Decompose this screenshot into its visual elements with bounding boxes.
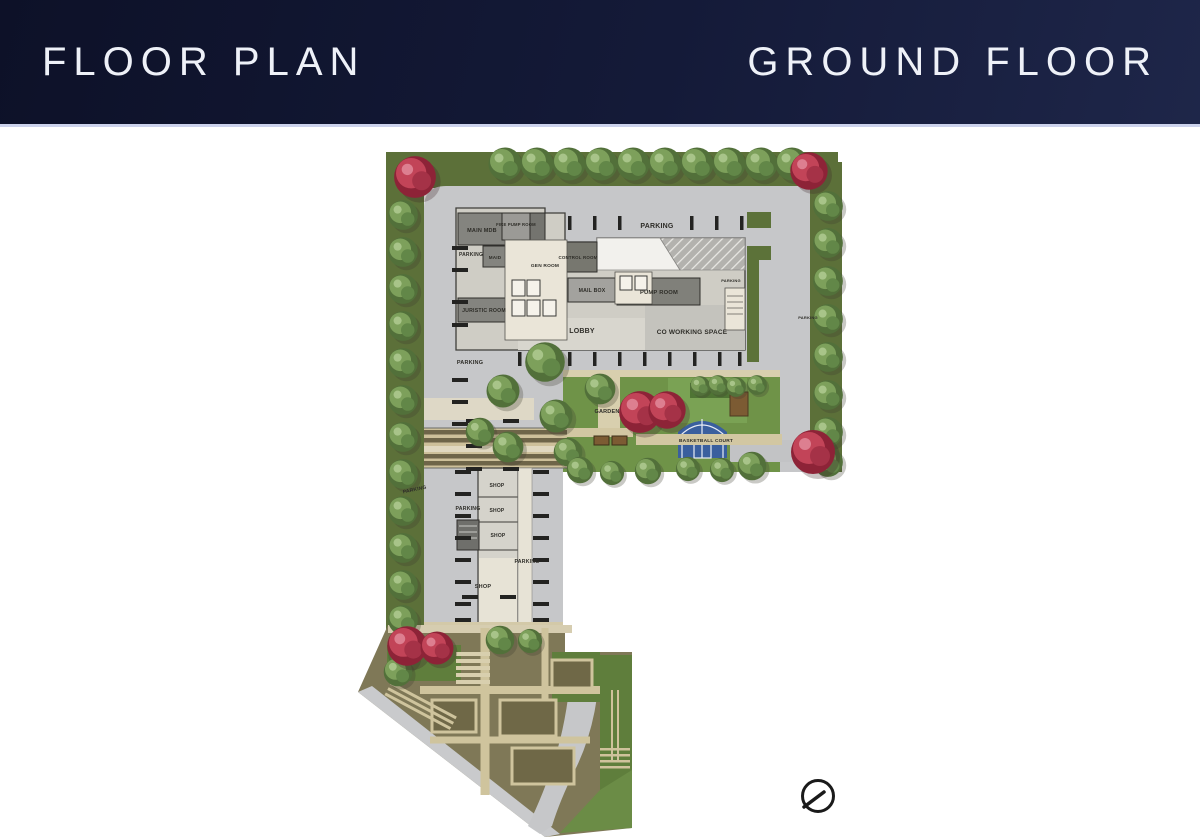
label-shop-2: SHOP (490, 508, 505, 514)
label-parking-right-road: PARKING (798, 315, 818, 320)
label-garden: GARDEN (594, 409, 619, 415)
header-bar: FLOOR PLAN GROUND FLOOR (0, 0, 1200, 127)
label-maid: MAID (489, 255, 502, 260)
page-subtitle: GROUND FLOOR (747, 40, 1158, 85)
page-title: FLOOR PLAN (42, 40, 365, 85)
label-parking-near-pump: PARKING (721, 278, 741, 283)
label-parking-upper-left: PARKING (459, 252, 483, 258)
label-parking-wing-left: PARKING (456, 506, 481, 512)
label-basketball-court: BASKETBALL COURT (679, 438, 733, 444)
label-shop-3: SHOP (491, 533, 506, 539)
label-juristic-room: JURISTIC ROOM (462, 308, 506, 314)
label-mail-box: MAIL BOX (579, 288, 606, 294)
label-pump-room: PUMP ROOM (640, 290, 678, 296)
label-main-mdb: MAIN MDB (467, 228, 497, 234)
label-gen-room: GEN ROOM (531, 263, 559, 269)
compass-north-icon (803, 781, 834, 812)
label-parking-top: PARKING (640, 223, 674, 230)
brochure-page: PARKING MAIN MDB FIRE PUMP ROOM PARKING … (0, 0, 1200, 837)
label-shop-large: SHOP (475, 584, 492, 590)
label-control-room: CONTROL ROOM (559, 255, 598, 260)
label-parking-wing-right: PARKING (515, 559, 540, 565)
label-parking-left-mid: PARKING (457, 360, 483, 366)
label-fire-pump-room: FIRE PUMP ROOM (496, 222, 536, 227)
label-shop-1: SHOP (490, 483, 505, 489)
label-co-working-space: CO WORKING SPACE (657, 329, 728, 336)
label-lobby: LOBBY (569, 328, 595, 335)
